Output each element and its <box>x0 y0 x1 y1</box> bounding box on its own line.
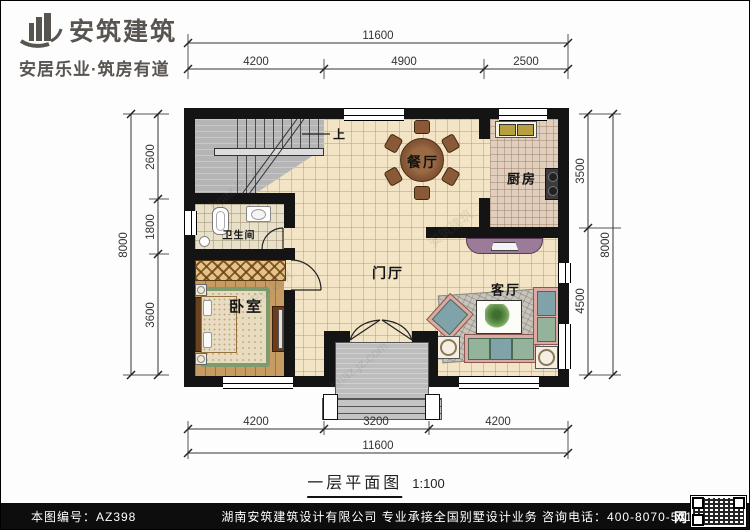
sheet-scale: 1:100 <box>412 476 445 491</box>
label-bathroom: 卫生间 <box>223 227 256 242</box>
wall-inner-vertical-c <box>284 290 295 376</box>
nightstand-bottom <box>195 353 207 365</box>
svg-text:8000: 8000 <box>118 232 130 258</box>
window-bedroom <box>223 376 293 389</box>
nightstand-top <box>195 284 207 296</box>
porch-column-right <box>425 394 440 420</box>
brand-name: 安筑建筑 <box>69 12 177 48</box>
wardrobe <box>195 260 286 281</box>
label-kitchen: 厨房 <box>507 169 537 188</box>
drawing-sheet: 安筑建筑 安居乐业·筑房有道 <box>0 0 750 530</box>
wall-bath-top <box>184 193 295 204</box>
pillow <box>203 300 212 316</box>
wall-kitchen-left-top <box>479 119 490 139</box>
wall-bath-bottom <box>184 249 295 260</box>
svg-text:1800: 1800 <box>145 214 157 240</box>
porch-column-left <box>323 394 338 420</box>
entry-porch <box>335 342 429 400</box>
window-living-bottom <box>459 376 539 389</box>
company-info: 湖南安筑建筑设计有限公司 专业承接全国别墅设计业务 咨询电话：400-8070-… <box>221 508 693 525</box>
svg-text:3500: 3500 <box>575 158 587 184</box>
side-table-left <box>437 336 460 359</box>
label-foyer: 门厅 <box>372 263 404 283</box>
stair-treads-upper <box>229 119 324 148</box>
brand-block: 安筑建筑 安居乐业·筑房有道 <box>19 11 229 80</box>
sofa-two-seat <box>533 287 559 345</box>
label-living: 客厅 <box>491 280 521 299</box>
svg-text:11600: 11600 <box>362 30 393 42</box>
pillow <box>203 332 212 348</box>
stair-treads-lower <box>229 156 263 194</box>
sheet-number: 本图编号：AZ398 <box>31 508 136 525</box>
bathroom-sink <box>199 236 210 247</box>
svg-text:11600: 11600 <box>362 440 393 452</box>
svg-text:4200: 4200 <box>243 56 269 68</box>
entry-side-left <box>324 342 335 387</box>
svg-text:2600: 2600 <box>145 144 157 170</box>
net-label: 网 <box>674 507 687 526</box>
wall-kitchen-living <box>426 227 558 238</box>
label-bedroom: 卧室 <box>229 296 263 317</box>
window-bathroom <box>184 211 197 235</box>
entry-wall-left <box>324 331 350 342</box>
window-kitchen <box>499 108 547 121</box>
plant <box>485 304 511 328</box>
entry-wall-right <box>412 331 438 342</box>
svg-text:3600: 3600 <box>145 302 157 328</box>
entry-steps <box>322 398 442 420</box>
label-dining: 餐厅 <box>407 152 439 172</box>
wall-left <box>184 108 195 387</box>
sheet-title-text: 一层平面图 <box>307 469 402 498</box>
sheet-title: 一层平面图 1:100 <box>307 469 445 498</box>
svg-text:2500: 2500 <box>513 56 539 68</box>
building-logo-icon <box>19 11 63 49</box>
toilet <box>246 206 271 222</box>
window-dining <box>344 108 404 121</box>
wall-inner-vertical-a <box>284 204 295 228</box>
qr-code <box>690 495 747 528</box>
svg-text:8000: 8000 <box>600 232 612 258</box>
window-living-right-b <box>558 324 571 369</box>
brand-tagline: 安居乐业·筑房有道 <box>19 55 229 80</box>
window-living-right-a <box>558 263 571 283</box>
floor-plan: 上 餐厅 厨房 卫生间 卧室 门厅 客厅 hnaz.jz.com hnaz.jz… <box>184 108 569 438</box>
kitchen-sink <box>495 121 537 138</box>
side-table-right <box>535 346 558 369</box>
svg-text:4500: 4500 <box>575 288 587 314</box>
label-stair-up: 上 <box>333 126 347 143</box>
footer-bar: 本图编号：AZ398 湖南安筑建筑设计有限公司 专业承接全国别墅设计业务 咨询电… <box>1 503 749 529</box>
sofa-three-seat <box>464 334 536 363</box>
svg-text:4900: 4900 <box>391 56 417 68</box>
tv-cabinet <box>466 238 543 254</box>
stair-handrail <box>214 148 324 156</box>
wall-kitchen-left-bottom <box>479 198 490 227</box>
wall-inner-vertical-b <box>284 248 295 260</box>
